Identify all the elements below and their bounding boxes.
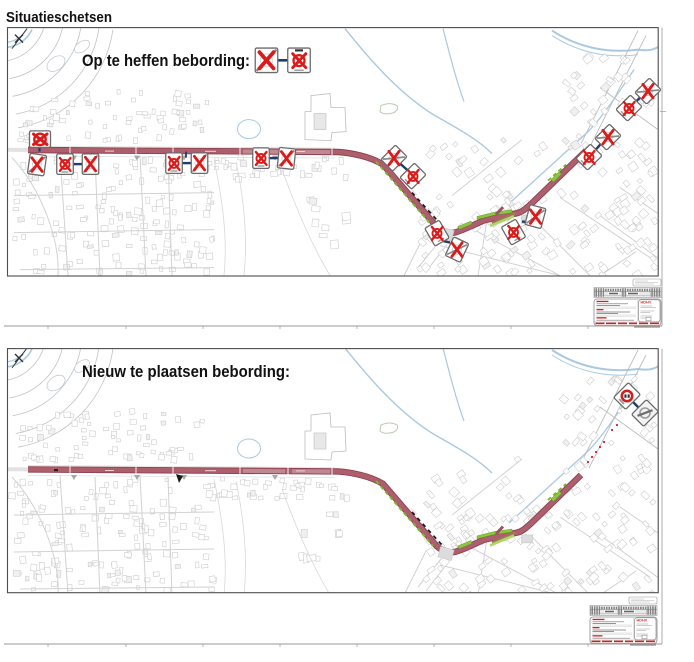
- svg-text:Nieuw te plaatsen bebording:: Nieuw te plaatsen bebording:: [82, 363, 290, 381]
- svg-text:Op te heffen bebording:: Op te heffen bebording:: [82, 52, 250, 70]
- svg-text:HDHV: HDHV: [641, 301, 652, 305]
- svg-text:HDHV: HDHV: [637, 619, 648, 623]
- svg-text:Situatieschetsen: Situatieschetsen: [6, 9, 112, 26]
